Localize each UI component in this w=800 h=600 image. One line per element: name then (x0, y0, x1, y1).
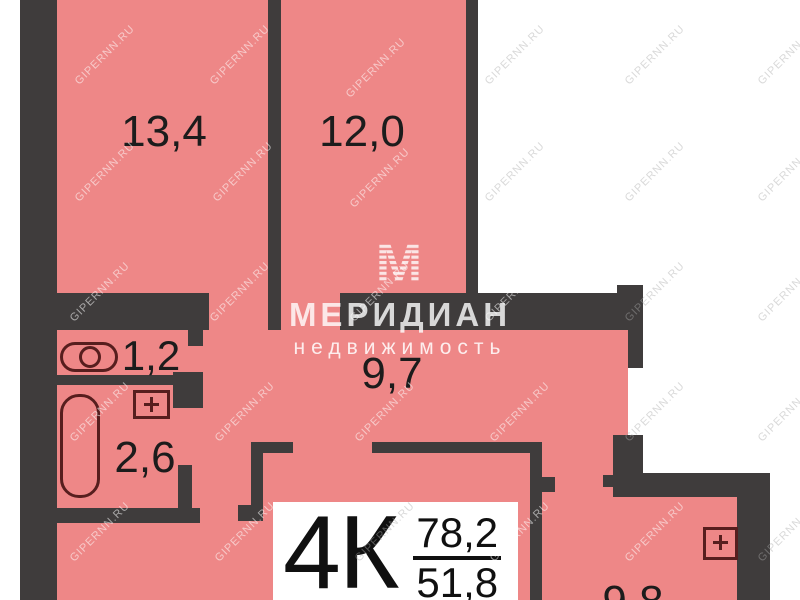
site-watermark: GIPERNN.RU (756, 380, 800, 444)
toilet-bowl-icon (79, 346, 101, 368)
agency-monogram-icon: М (364, 234, 434, 286)
agency-tagline: недвижимость (294, 336, 507, 360)
apartment-type-label: 4К (283, 506, 397, 600)
wall-center-room-left-foot (238, 505, 263, 521)
wall-hall-top-mid (268, 293, 281, 330)
site-watermark: GIPERNN.RU (623, 140, 687, 204)
wall-bath-bottom (57, 508, 200, 523)
site-watermark: GIPERNN.RU (483, 23, 547, 87)
wall-bath-right-lower (178, 465, 192, 508)
wc-area-label: 1,2 (122, 332, 180, 380)
wall-jamb-strip-right (603, 475, 615, 487)
heater-icon (703, 527, 738, 560)
site-watermark: GIPERNN.RU (756, 140, 800, 204)
site-watermark: GIPERNN.RU (756, 260, 800, 324)
site-watermark: GIPERNN.RU (756, 23, 800, 87)
room-bottom-right-area-label: 9,8 (602, 577, 663, 600)
bathtub-icon (60, 394, 100, 498)
site-watermark: GIPERNN.RU (623, 23, 687, 87)
svg-text:М: М (376, 234, 423, 286)
wall-right-of-top-room (466, 0, 478, 293)
sink-icon (133, 390, 170, 419)
floor-plan: 4К 78,2 51,8 13,4 12,0 1,2 9,7 2,6 9,8 М… (0, 0, 800, 600)
wall-right-upper (628, 330, 643, 368)
wall-outer-right-bottom (737, 497, 770, 600)
wall-hall-top-left (20, 293, 209, 330)
apartment-areas: 78,2 51,8 (413, 510, 501, 600)
wall-center-room-right (530, 442, 542, 600)
heater-plus-icon (711, 533, 730, 552)
room-top-right-area-label: 12,0 (319, 107, 405, 157)
apartment-badge: 4К 78,2 51,8 (273, 502, 518, 600)
wall-between-top-rooms (268, 0, 281, 330)
bathroom-area-label: 2,6 (114, 433, 175, 483)
wall-center-room-top-left (251, 442, 293, 453)
living-area-value: 51,8 (413, 560, 501, 600)
wall-right-lower (613, 435, 643, 473)
site-watermark: GIPERNN.RU (483, 140, 547, 204)
total-area-value: 78,2 (413, 510, 501, 560)
room-top-left-area-label: 13,4 (121, 107, 207, 157)
wall-right-lip (617, 285, 643, 293)
agency-name: МЕРИДИАН (289, 296, 511, 334)
wall-jamb-strip-left (542, 477, 555, 492)
sink-plus-icon (142, 395, 161, 414)
wall-wc-right-jamb (188, 328, 203, 346)
wall-bottom-right-horiz (613, 473, 770, 497)
wall-center-room-top-right (372, 442, 530, 453)
